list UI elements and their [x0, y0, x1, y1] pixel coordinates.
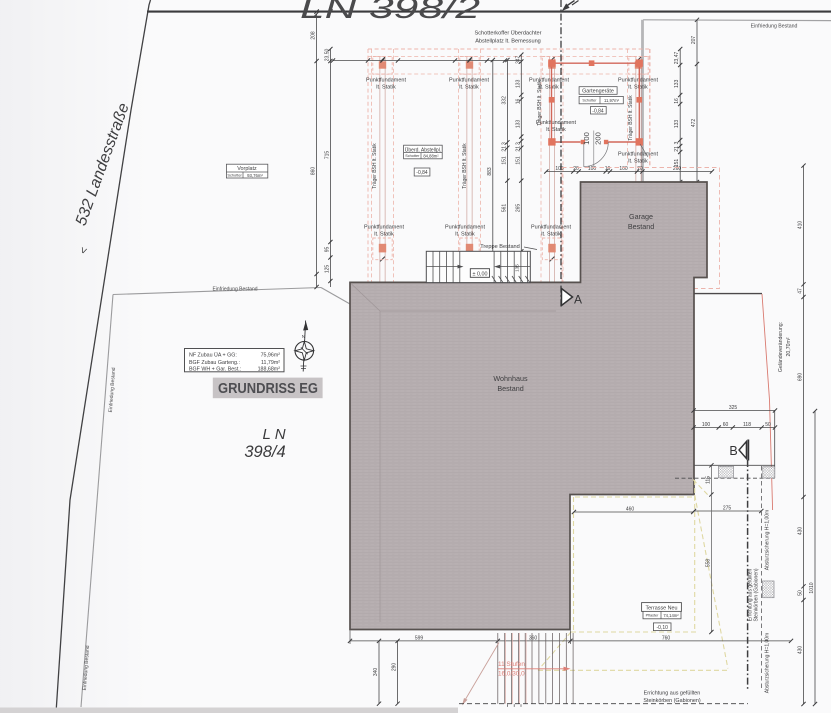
- svg-text:332: 332: [501, 96, 507, 105]
- svg-text:430: 430: [798, 646, 804, 655]
- svg-text:760: 760: [662, 635, 671, 641]
- svg-text:265: 265: [515, 204, 521, 213]
- svg-text:Geländeveränderung:: Geländeveränderung:: [778, 322, 784, 372]
- svg-text:lt. Statik: lt. Statik: [455, 232, 475, 238]
- svg-text:16: 16: [605, 166, 611, 172]
- svg-text:151: 151: [515, 156, 521, 165]
- svg-text:410: 410: [798, 221, 804, 230]
- svg-text:599: 599: [415, 635, 424, 641]
- svg-text:1010: 1010: [809, 582, 815, 593]
- svg-text:100: 100: [555, 166, 564, 172]
- svg-text:Punktfundament: Punktfundament: [364, 225, 405, 231]
- svg-text:Punktfundament: Punktfundament: [445, 225, 486, 231]
- svg-text:lt. Statik: lt. Statik: [541, 232, 561, 238]
- svg-text:21: 21: [501, 146, 507, 152]
- svg-text:460: 460: [626, 506, 635, 512]
- svg-text:-0,84: -0,84: [592, 108, 604, 114]
- svg-text:3: 3: [515, 142, 521, 145]
- svg-text:20,70m²: 20,70m²: [786, 337, 792, 356]
- svg-text:60: 60: [723, 422, 729, 428]
- svg-text:472: 472: [691, 119, 697, 128]
- svg-text:47: 47: [798, 288, 804, 294]
- svg-text:690: 690: [798, 373, 804, 382]
- svg-text:NF Zubau ÜA + GG:: NF Zubau ÜA + GG:: [189, 351, 237, 358]
- svg-text:16,0/30,0: 16,0/30,0: [498, 671, 525, 678]
- svg-text:561: 561: [501, 204, 507, 213]
- svg-text:Träger BSH lt. Statik: Träger BSH lt. Statik: [537, 80, 543, 126]
- svg-text:Punktfundament: Punktfundament: [366, 78, 407, 84]
- svg-text:133: 133: [515, 79, 521, 88]
- svg-text:Schotter: Schotter: [405, 154, 420, 158]
- svg-text:Träger BSH lt. Statik: Träger BSH lt. Statik: [628, 95, 634, 141]
- svg-text:3: 3: [674, 141, 680, 144]
- svg-text:11,79m²: 11,79m²: [261, 360, 280, 366]
- svg-text:A: A: [574, 293, 582, 307]
- svg-text:207: 207: [691, 36, 697, 45]
- svg-text:125: 125: [324, 265, 330, 274]
- svg-text:340: 340: [373, 668, 379, 677]
- svg-text:Einfriedung Bestand: Einfriedung Bestand: [212, 287, 257, 293]
- svg-text:Abstellplatz lt. Bemessung: Abstellplatz lt. Bemessung: [475, 39, 541, 45]
- svg-text:Träger BSH lt. Statik: Träger BSH lt. Statik: [372, 143, 378, 189]
- svg-text:23,50: 23,50: [324, 49, 330, 62]
- svg-text:74,14m²: 74,14m²: [663, 613, 679, 618]
- svg-text:LN 398/2: LN 398/2: [300, 0, 480, 25]
- svg-text:Garage: Garage: [629, 212, 653, 221]
- svg-text:B: B: [729, 444, 737, 458]
- svg-text:135: 135: [515, 264, 520, 272]
- svg-text:260: 260: [673, 166, 682, 172]
- svg-text:75,96m²: 75,96m²: [261, 352, 281, 358]
- svg-text:100: 100: [702, 422, 711, 428]
- svg-text:lt. Statik: lt. Statik: [459, 85, 479, 91]
- svg-text:Errichtung aus gefüllten: Errichtung aus gefüllten: [644, 691, 701, 697]
- svg-text:558: 558: [705, 559, 711, 568]
- svg-text:100: 100: [582, 132, 591, 145]
- svg-text:lt. Statik: lt. Statik: [628, 159, 648, 165]
- svg-text:-0,10: -0,10: [656, 625, 668, 631]
- svg-text:3: 3: [501, 142, 507, 145]
- svg-text:lt. Statik: lt. Statik: [546, 127, 566, 133]
- svg-text:715: 715: [324, 151, 330, 160]
- svg-text:360: 360: [529, 635, 538, 641]
- svg-text:100: 100: [588, 166, 597, 172]
- svg-text:Einfriedung Bestand: Einfriedung Bestand: [751, 24, 798, 30]
- svg-text:Pflaster: Pflaster: [646, 614, 660, 618]
- svg-text:118: 118: [743, 422, 751, 428]
- svg-text:188,68m²: 188,68m²: [258, 367, 281, 373]
- svg-text:325: 325: [729, 405, 738, 411]
- svg-text:Absturzsicherung H=1,00m: Absturzsicherung H=1,00m: [765, 510, 771, 570]
- svg-text:Punktfundament: Punktfundament: [529, 78, 570, 84]
- svg-text:Schotter: Schotter: [582, 99, 597, 103]
- svg-text:23,47: 23,47: [674, 52, 680, 65]
- svg-text:lt. Statik: lt. Statik: [628, 85, 648, 91]
- svg-text:21: 21: [674, 146, 680, 152]
- svg-text:BGF Zubau Garteng.:: BGF Zubau Garteng.:: [189, 360, 240, 366]
- svg-text:398/4: 398/4: [244, 443, 285, 461]
- svg-text:200: 200: [594, 132, 603, 145]
- svg-text:Schotterkoffer Überdachter: Schotterkoffer Überdachter: [474, 30, 541, 37]
- svg-text:860: 860: [311, 167, 317, 176]
- svg-text:Wohnhaus: Wohnhaus: [493, 374, 528, 383]
- svg-text:290: 290: [392, 663, 398, 672]
- svg-text:Punktfundament: Punktfundament: [531, 225, 572, 231]
- svg-text:Bestand: Bestand: [628, 222, 654, 231]
- svg-text:133: 133: [674, 79, 680, 88]
- svg-text:20: 20: [573, 166, 579, 172]
- svg-text:Punktfundament: Punktfundament: [449, 78, 490, 84]
- svg-text:Steinkörben (Gabionen): Steinkörben (Gabionen): [754, 568, 760, 621]
- svg-text:Gartengeräte: Gartengeräte: [582, 89, 614, 95]
- svg-text:93,76m²: 93,76m²: [247, 173, 263, 178]
- svg-text:lt. Statik: lt. Statik: [374, 232, 394, 238]
- svg-text:208: 208: [311, 31, 317, 40]
- svg-text:Treppe Bestand: Treppe Bestand: [480, 244, 520, 250]
- svg-text:Punktfundament: Punktfundament: [618, 152, 659, 158]
- svg-text:133: 133: [674, 120, 680, 129]
- svg-text:50: 50: [798, 590, 804, 596]
- svg-text:883: 883: [487, 167, 493, 176]
- svg-text:Steinkörben (Gabionen): Steinkörben (Gabionen): [643, 698, 700, 704]
- svg-text:20: 20: [637, 166, 643, 172]
- svg-text:BGF WH + Gar. Best.:: BGF WH + Gar. Best.:: [189, 367, 241, 373]
- svg-text:151: 151: [501, 156, 507, 165]
- svg-text:Absturzsicherung H=1,00m: Absturzsicherung H=1,00m: [765, 633, 771, 693]
- svg-text:84,88m²: 84,88m²: [423, 153, 439, 158]
- svg-text:95: 95: [324, 247, 330, 253]
- svg-text:50: 50: [765, 422, 771, 428]
- svg-text:133: 133: [515, 120, 521, 129]
- svg-text:Bestand: Bestand: [497, 384, 523, 393]
- svg-text:L N: L N: [262, 426, 285, 443]
- svg-text:11 Stufen: 11 Stufen: [498, 661, 525, 668]
- svg-text:100: 100: [619, 166, 628, 172]
- svg-text:115: 115: [705, 476, 711, 484]
- svg-text:21: 21: [515, 146, 521, 152]
- svg-text:-0,84: -0,84: [416, 170, 428, 176]
- svg-text:Träger BSH lt. Statik: Träger BSH lt. Statik: [462, 143, 468, 189]
- svg-text:GRUNDRISS EG: GRUNDRISS EG: [218, 380, 318, 397]
- svg-text:N: N: [302, 334, 305, 339]
- svg-text:430: 430: [798, 527, 804, 536]
- svg-text:Vorplatz: Vorplatz: [237, 166, 257, 172]
- svg-text:± 0,00: ± 0,00: [473, 271, 488, 277]
- svg-text:lt. Statik: lt. Statik: [376, 85, 396, 91]
- svg-text:16: 16: [515, 99, 521, 105]
- svg-text:11,97m²: 11,97m²: [604, 98, 620, 103]
- svg-text:47: 47: [515, 56, 521, 62]
- svg-text:Terrasse Neu: Terrasse Neu: [645, 605, 677, 611]
- svg-text:275: 275: [723, 505, 732, 511]
- svg-text:Schotter: Schotter: [227, 173, 242, 178]
- svg-text:3: 3: [515, 61, 521, 64]
- svg-text:16: 16: [674, 98, 680, 104]
- svg-text:Punktfundament: Punktfundament: [618, 78, 659, 84]
